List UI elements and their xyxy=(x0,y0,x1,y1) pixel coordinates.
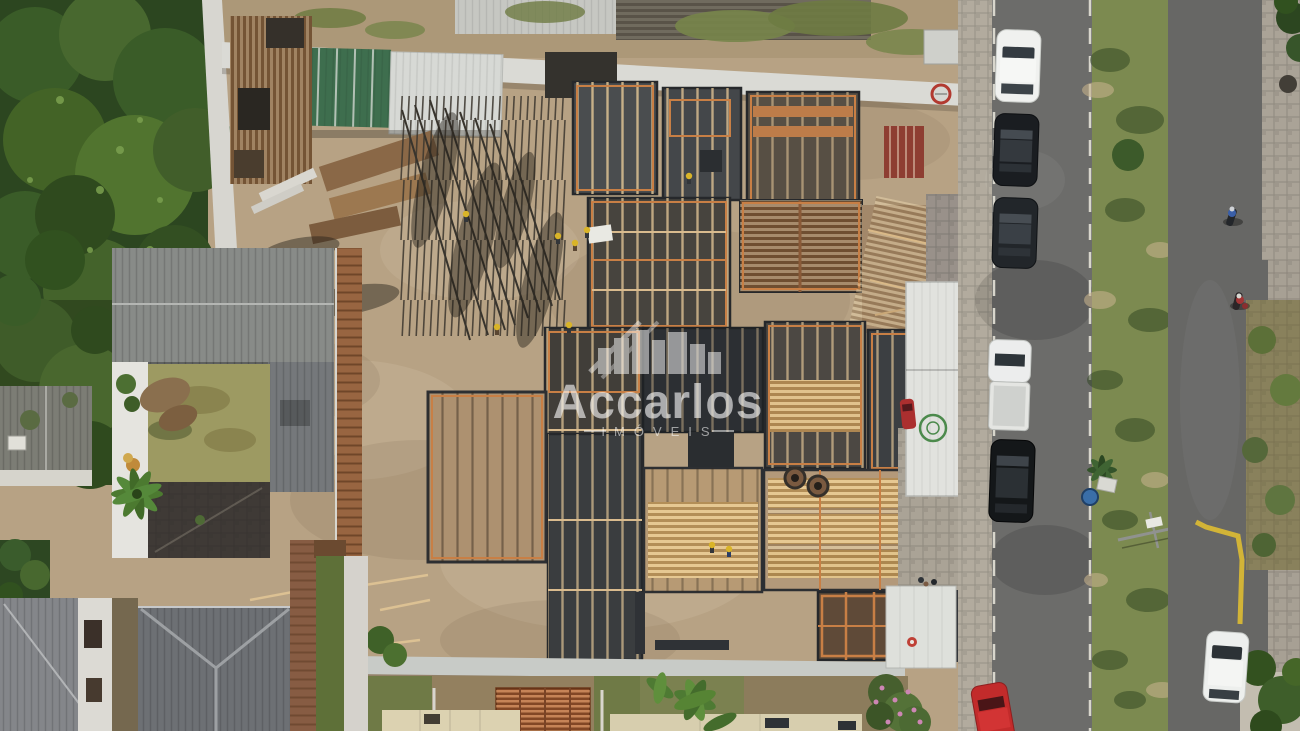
cream-roof-house-1 xyxy=(382,710,520,731)
black-suv xyxy=(989,439,1036,522)
watermark-subtitle: IMÓVEIS xyxy=(601,424,718,439)
small-house-left xyxy=(0,386,92,486)
white-hatchback xyxy=(1203,631,1250,704)
window xyxy=(86,678,102,702)
photo-canvas: Accarlos IMÓVEIS xyxy=(0,0,1300,731)
street-section xyxy=(958,0,1300,731)
aerial-photo-construction-site: Accarlos IMÓVEIS xyxy=(0,0,1300,731)
watermark-brand: Accarlos xyxy=(553,376,764,429)
panel-f xyxy=(588,198,730,330)
blue-barrel xyxy=(1082,489,1098,505)
hip-roof-house xyxy=(138,606,292,731)
bush xyxy=(383,643,407,667)
panel-k xyxy=(765,322,865,468)
black-car-mid xyxy=(992,197,1038,268)
white-board xyxy=(587,224,613,243)
dark-beam xyxy=(635,592,645,654)
median-shrub xyxy=(1112,139,1144,171)
white-shed-2 xyxy=(886,586,956,668)
white-path xyxy=(344,556,368,731)
white-car-top xyxy=(995,29,1041,102)
chimney xyxy=(8,436,26,450)
panel-n xyxy=(548,434,642,660)
manhole xyxy=(1279,75,1297,93)
panel-b xyxy=(663,88,741,200)
black-car-upper xyxy=(993,113,1039,186)
stacked-planks xyxy=(740,200,862,292)
dark-beam xyxy=(655,640,729,650)
panel-c xyxy=(747,92,859,204)
white-pickup xyxy=(986,339,1031,430)
fence xyxy=(314,540,346,558)
panel-a xyxy=(573,82,657,194)
white-long-shed xyxy=(906,282,964,496)
panel-o xyxy=(644,468,762,592)
window xyxy=(84,620,102,648)
white-wall-bl xyxy=(78,598,112,731)
red-boards xyxy=(884,126,924,178)
panel-m xyxy=(428,392,546,562)
